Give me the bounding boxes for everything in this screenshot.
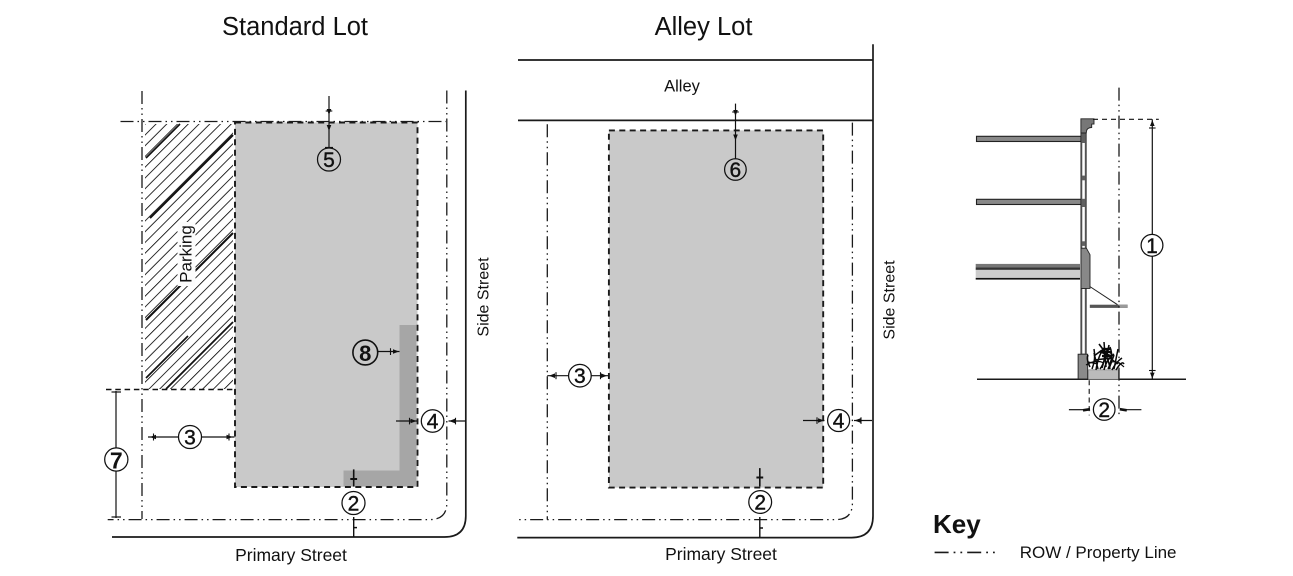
- svg-text:ROW / Property Line: ROW / Property Line: [1020, 543, 1177, 562]
- svg-text:8: 8: [359, 341, 371, 366]
- svg-text:Primary Street: Primary Street: [235, 545, 347, 565]
- svg-text:4: 4: [427, 411, 439, 434]
- svg-text:7: 7: [110, 448, 123, 474]
- svg-text:Alley Lot: Alley Lot: [655, 13, 753, 41]
- svg-text:Standard Lot: Standard Lot: [222, 13, 368, 41]
- svg-text:1: 1: [1146, 235, 1158, 258]
- svg-text:Parking: Parking: [177, 225, 196, 283]
- svg-text:4: 4: [833, 410, 845, 433]
- svg-text:2: 2: [1098, 399, 1110, 422]
- svg-text:Side Street: Side Street: [882, 260, 899, 340]
- svg-text:Side Street: Side Street: [476, 257, 493, 337]
- svg-text:Primary Street: Primary Street: [665, 544, 777, 564]
- svg-text:3: 3: [184, 427, 196, 450]
- svg-text:Alley: Alley: [664, 78, 701, 96]
- svg-text:2: 2: [754, 492, 766, 515]
- svg-text:6: 6: [730, 159, 742, 182]
- svg-text:5: 5: [323, 149, 335, 172]
- svg-text:2: 2: [348, 493, 360, 516]
- svg-text:3: 3: [574, 365, 586, 388]
- svg-text:Key: Key: [933, 509, 981, 539]
